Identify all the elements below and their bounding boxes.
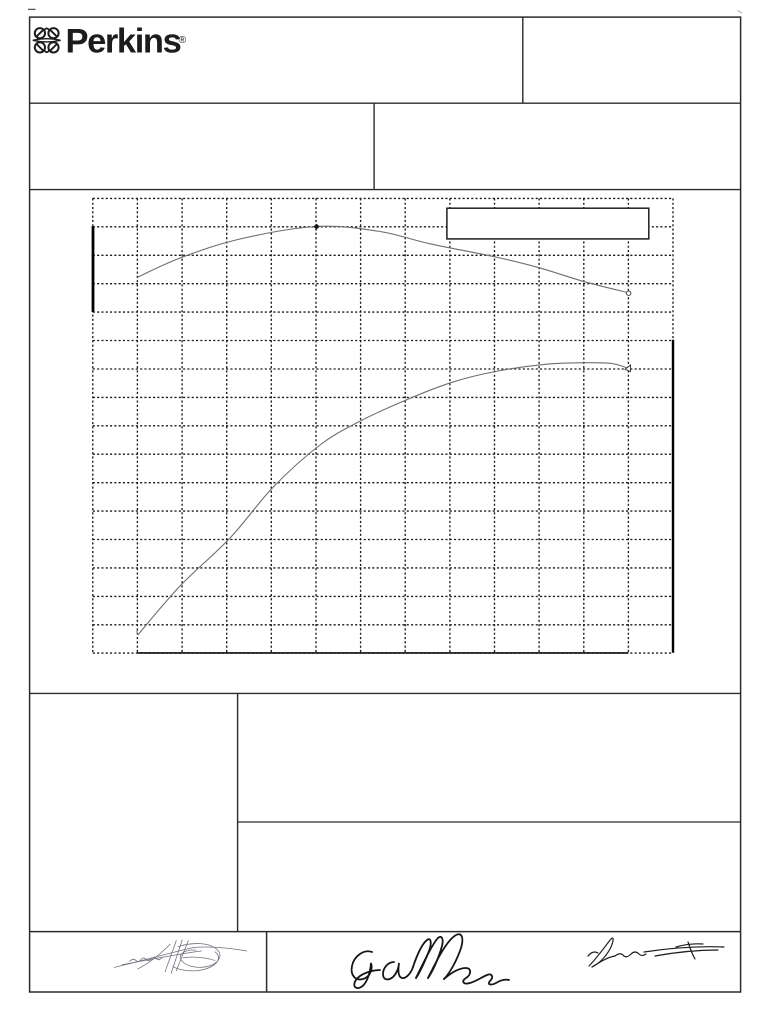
- svg-text:Perkins: Perkins: [66, 22, 181, 60]
- svg-text:®: ®: [179, 34, 187, 46]
